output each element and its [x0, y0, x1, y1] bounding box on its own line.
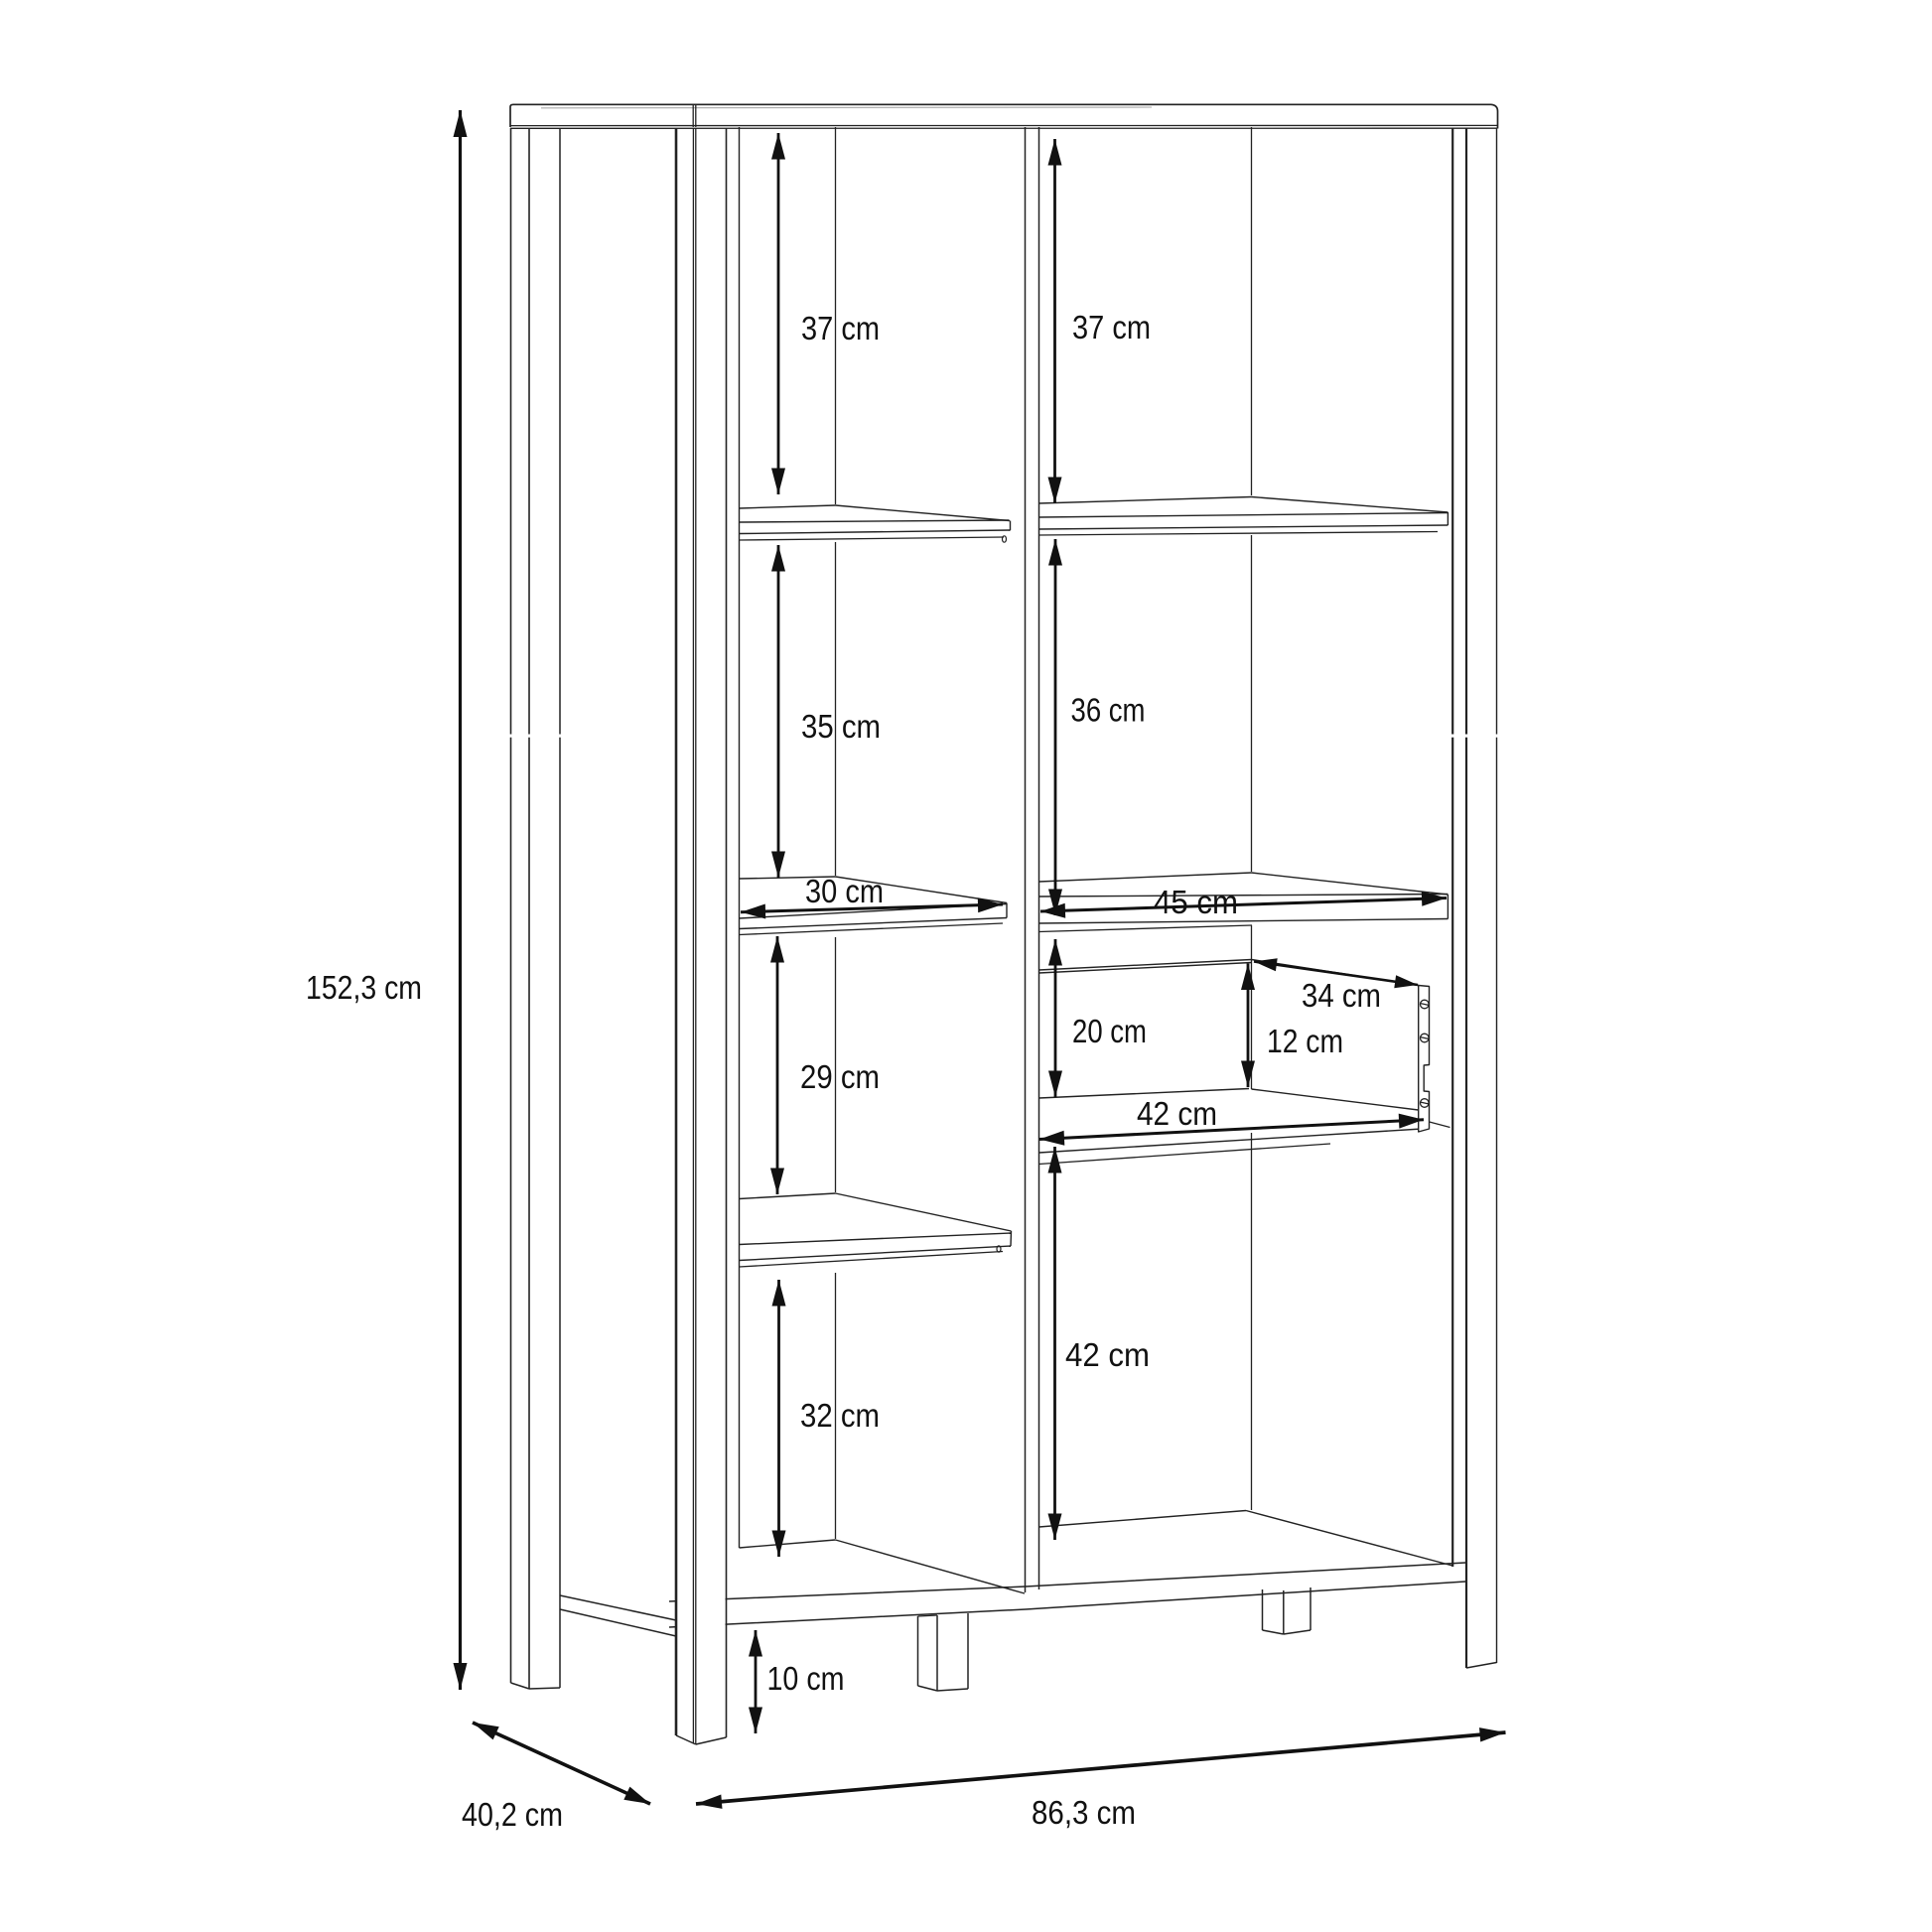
svg-text:36 cm: 36 cm	[1071, 692, 1146, 729]
svg-text:12 cm: 12 cm	[1267, 1023, 1343, 1059]
svg-text:86,3 cm: 86,3 cm	[1032, 1794, 1136, 1831]
svg-text:30 cm: 30 cm	[805, 873, 884, 909]
svg-text:32 cm: 32 cm	[800, 1397, 880, 1434]
svg-text:10 cm: 10 cm	[767, 1660, 845, 1697]
svg-text:34 cm: 34 cm	[1302, 977, 1381, 1014]
svg-text:20 cm: 20 cm	[1072, 1013, 1147, 1049]
svg-text:37 cm: 37 cm	[1072, 309, 1151, 345]
svg-text:40,2 cm: 40,2 cm	[462, 1796, 563, 1833]
svg-text:42 cm: 42 cm	[1065, 1336, 1150, 1373]
svg-text:35 cm: 35 cm	[801, 708, 881, 745]
svg-text:45 cm: 45 cm	[1154, 884, 1238, 920]
svg-text:29 cm: 29 cm	[800, 1058, 880, 1095]
svg-text:152,3 cm: 152,3 cm	[306, 969, 422, 1006]
svg-text:37 cm: 37 cm	[801, 310, 880, 346]
svg-text:42 cm: 42 cm	[1137, 1095, 1217, 1132]
